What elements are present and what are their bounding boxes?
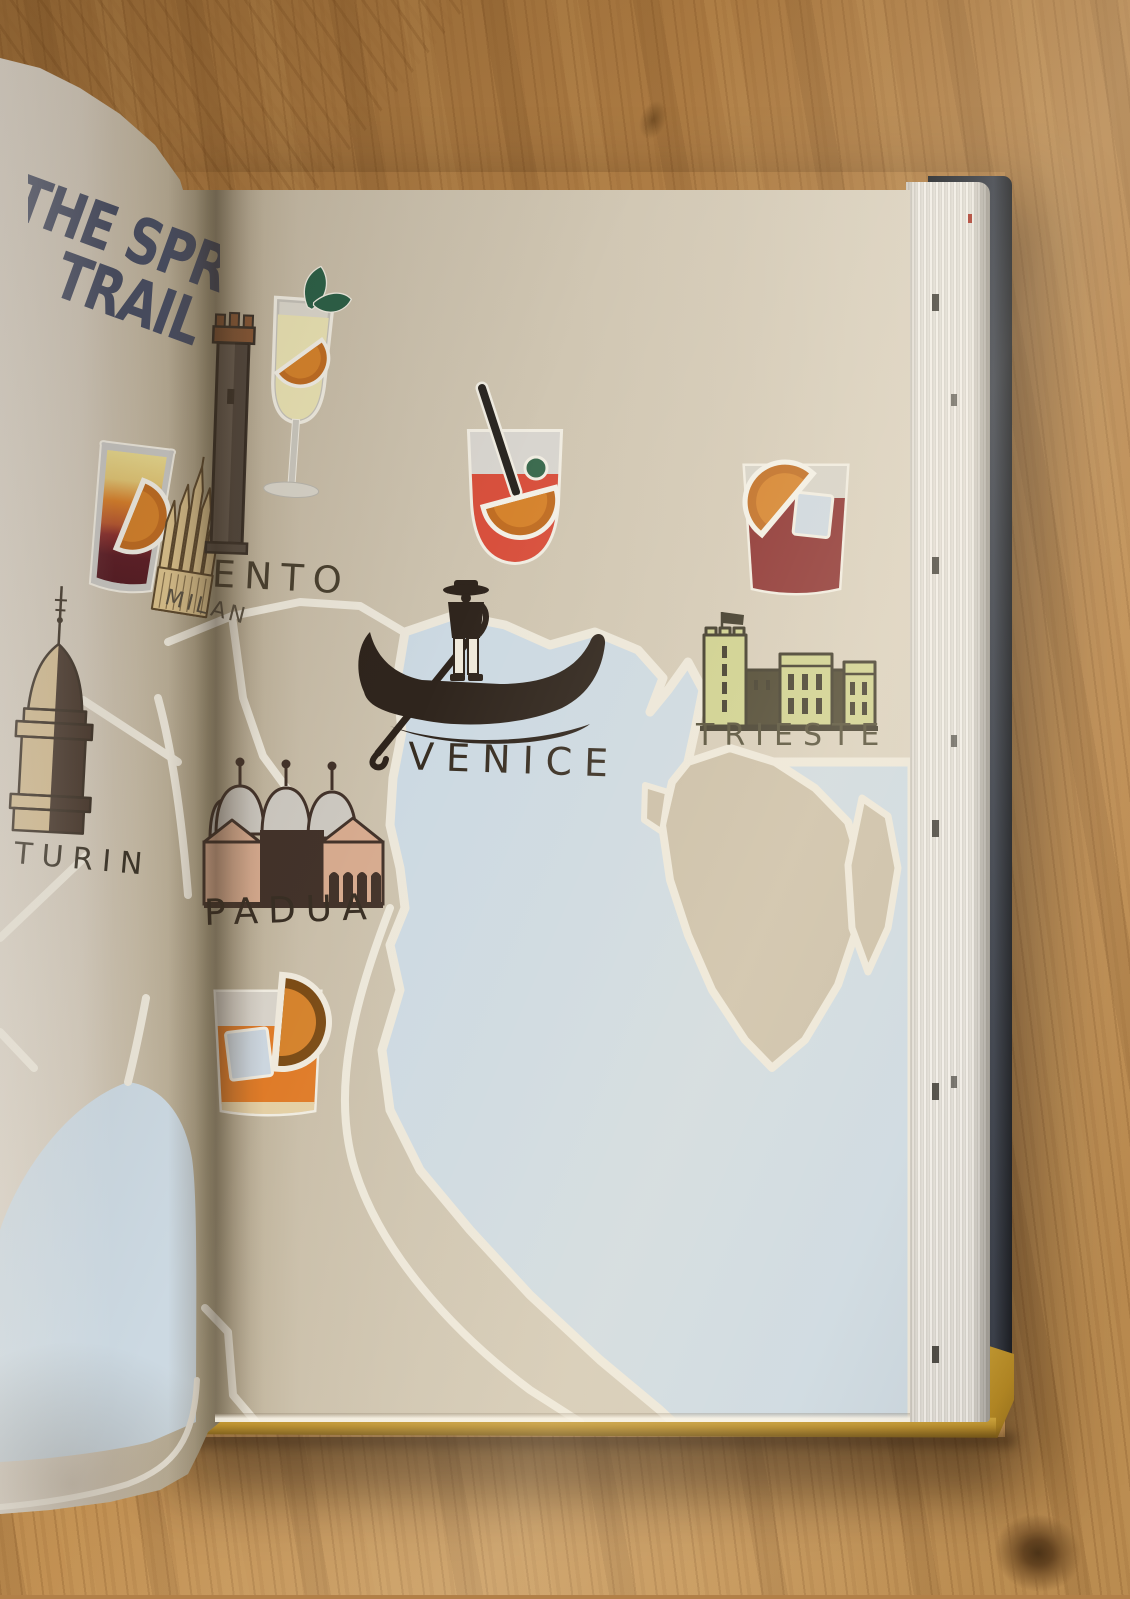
book-bottom-shadow <box>188 1432 1016 1448</box>
flag-icon <box>722 612 744 625</box>
negroni-glass-icon <box>731 450 861 608</box>
page-block-fore-edge <box>906 182 990 1422</box>
open-book-spread: ENTO MILAN TURIN VENICE TRIESTE PADUA TH… <box>0 50 910 1520</box>
map-label-venice: VENICE <box>407 734 621 785</box>
lagoon-island <box>644 785 668 832</box>
fore-edge-ink-marks <box>932 182 939 1422</box>
fore-edge-red-mark <box>968 214 972 223</box>
olive-icon <box>525 457 547 479</box>
left-page-highlight <box>0 50 135 1520</box>
venice-spritz-glass-icon <box>450 382 580 597</box>
gutter-shadow <box>168 50 264 1520</box>
fore-edge-ink-marks-2 <box>951 242 957 1383</box>
map-label-trieste: TRIESTE <box>696 718 889 753</box>
ice-cube-icon <box>793 492 833 538</box>
trieste-castle-icon <box>692 608 878 734</box>
right-page-bottom-edge <box>215 1413 910 1422</box>
